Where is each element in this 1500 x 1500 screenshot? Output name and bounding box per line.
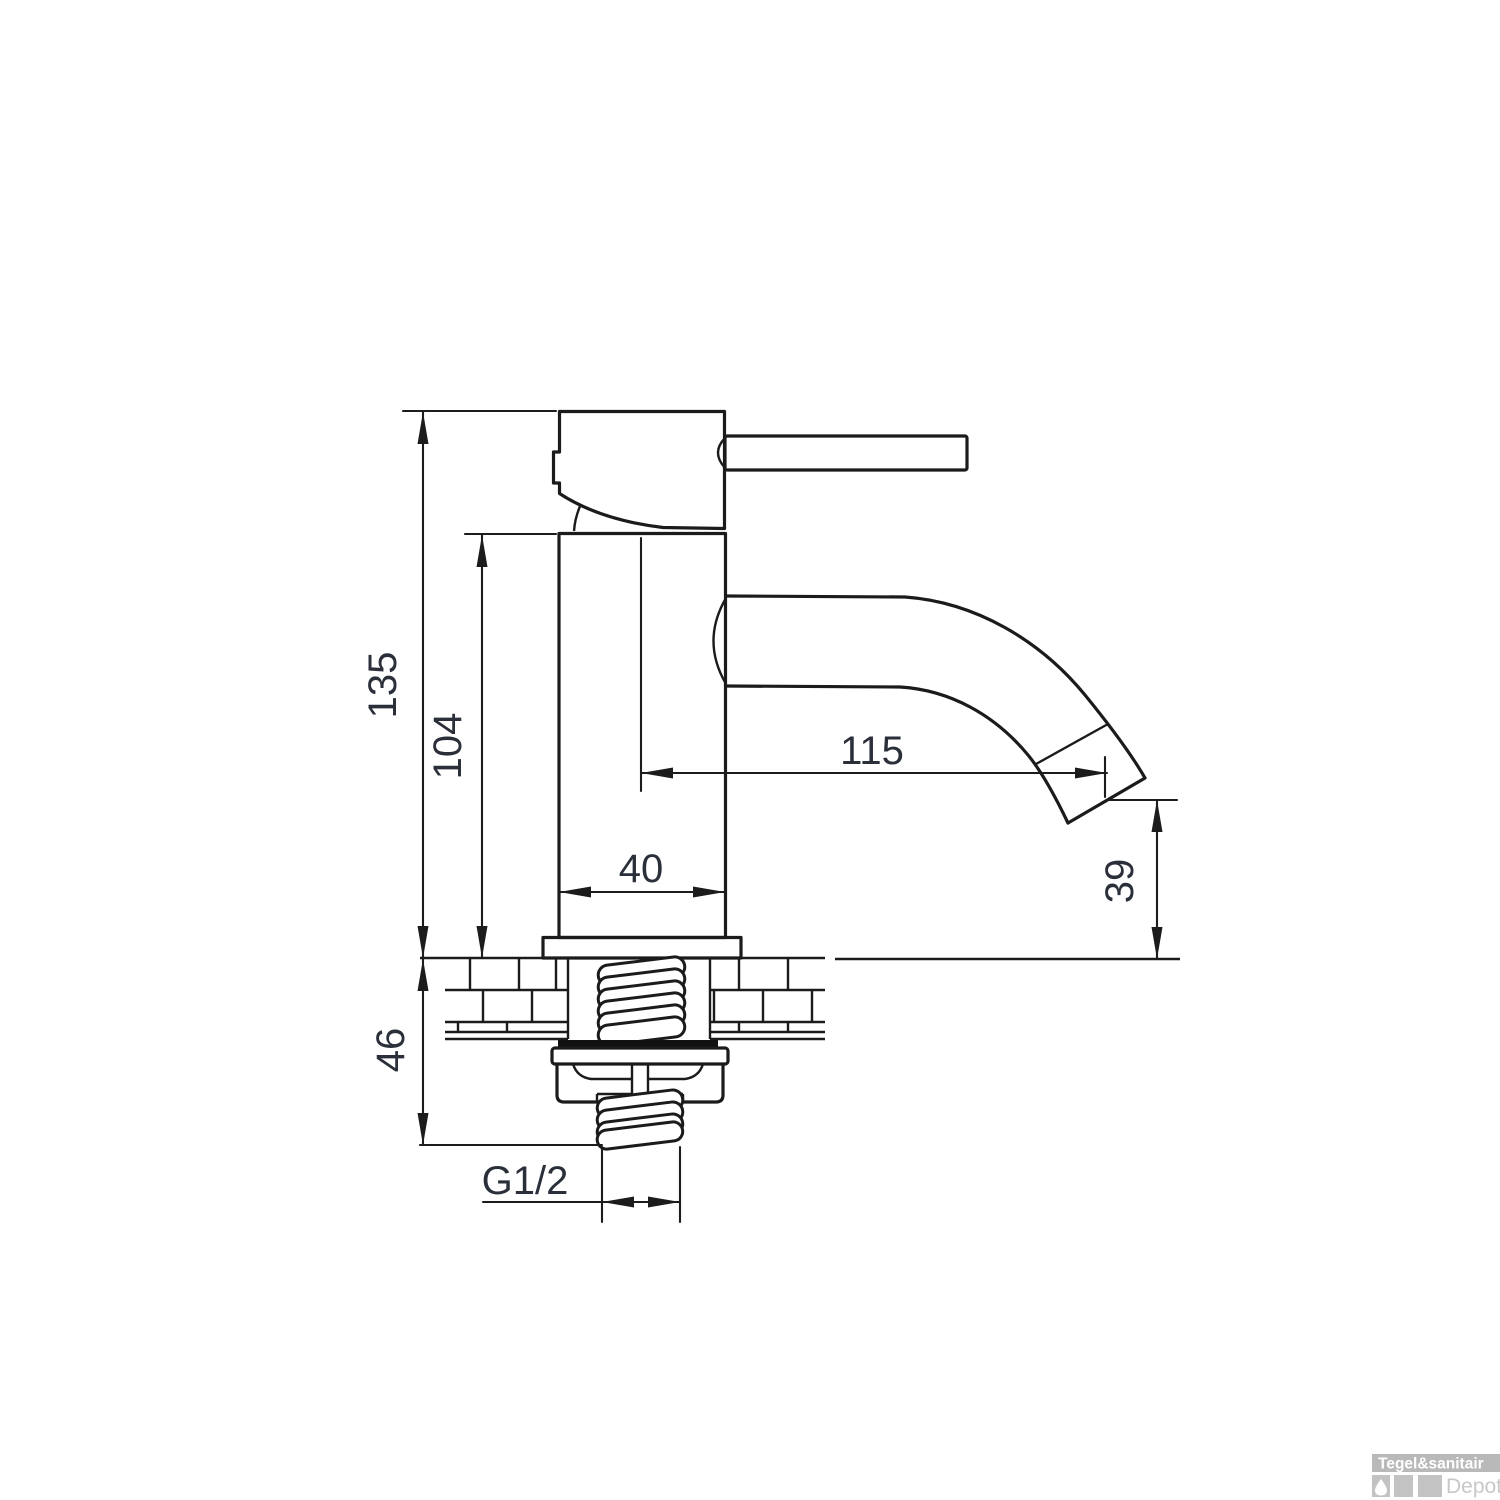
watermark-depot: Depot xyxy=(1446,1475,1500,1498)
aerator-ring-line xyxy=(1036,724,1108,764)
dimension-total-height: 135 xyxy=(361,411,556,958)
watermark-square-3 xyxy=(1418,1475,1442,1497)
faucet-head xyxy=(554,412,725,532)
dim-label-115: 115 xyxy=(840,729,904,773)
technical-drawing-page: 135 104 115 40 39 46 xyxy=(0,0,1500,1500)
faucet-spout xyxy=(714,596,1146,823)
dimension-outlet-height: 39 xyxy=(1098,800,1177,959)
dimension-thread-size: G1/2 xyxy=(482,1147,680,1222)
thread-shank-lower xyxy=(596,1089,684,1150)
watermark: Tegel&sanitair Depot xyxy=(1372,1454,1500,1498)
dim-label-135: 135 xyxy=(361,652,405,719)
dimension-body-width: 40 xyxy=(559,847,725,898)
faucet-dimension-drawing: 135 104 115 40 39 46 xyxy=(0,0,1500,1500)
handle-bar xyxy=(725,436,967,470)
base-plate xyxy=(543,938,741,959)
dim-label-39: 39 xyxy=(1098,859,1142,904)
dim-label-40: 40 xyxy=(619,847,664,891)
dim-label-46: 46 xyxy=(369,1028,413,1073)
watermark-title: Tegel&sanitair xyxy=(1378,1456,1484,1473)
watermark-square-2 xyxy=(1394,1475,1413,1497)
dimension-body-height: 104 xyxy=(426,534,556,958)
dim-label-g12: G1/2 xyxy=(482,1159,569,1203)
thread-shank-upper xyxy=(597,956,686,1046)
mounting-surface xyxy=(420,958,1180,1039)
faucet-handle-lever xyxy=(718,436,967,470)
dim-label-104: 104 xyxy=(426,713,470,780)
